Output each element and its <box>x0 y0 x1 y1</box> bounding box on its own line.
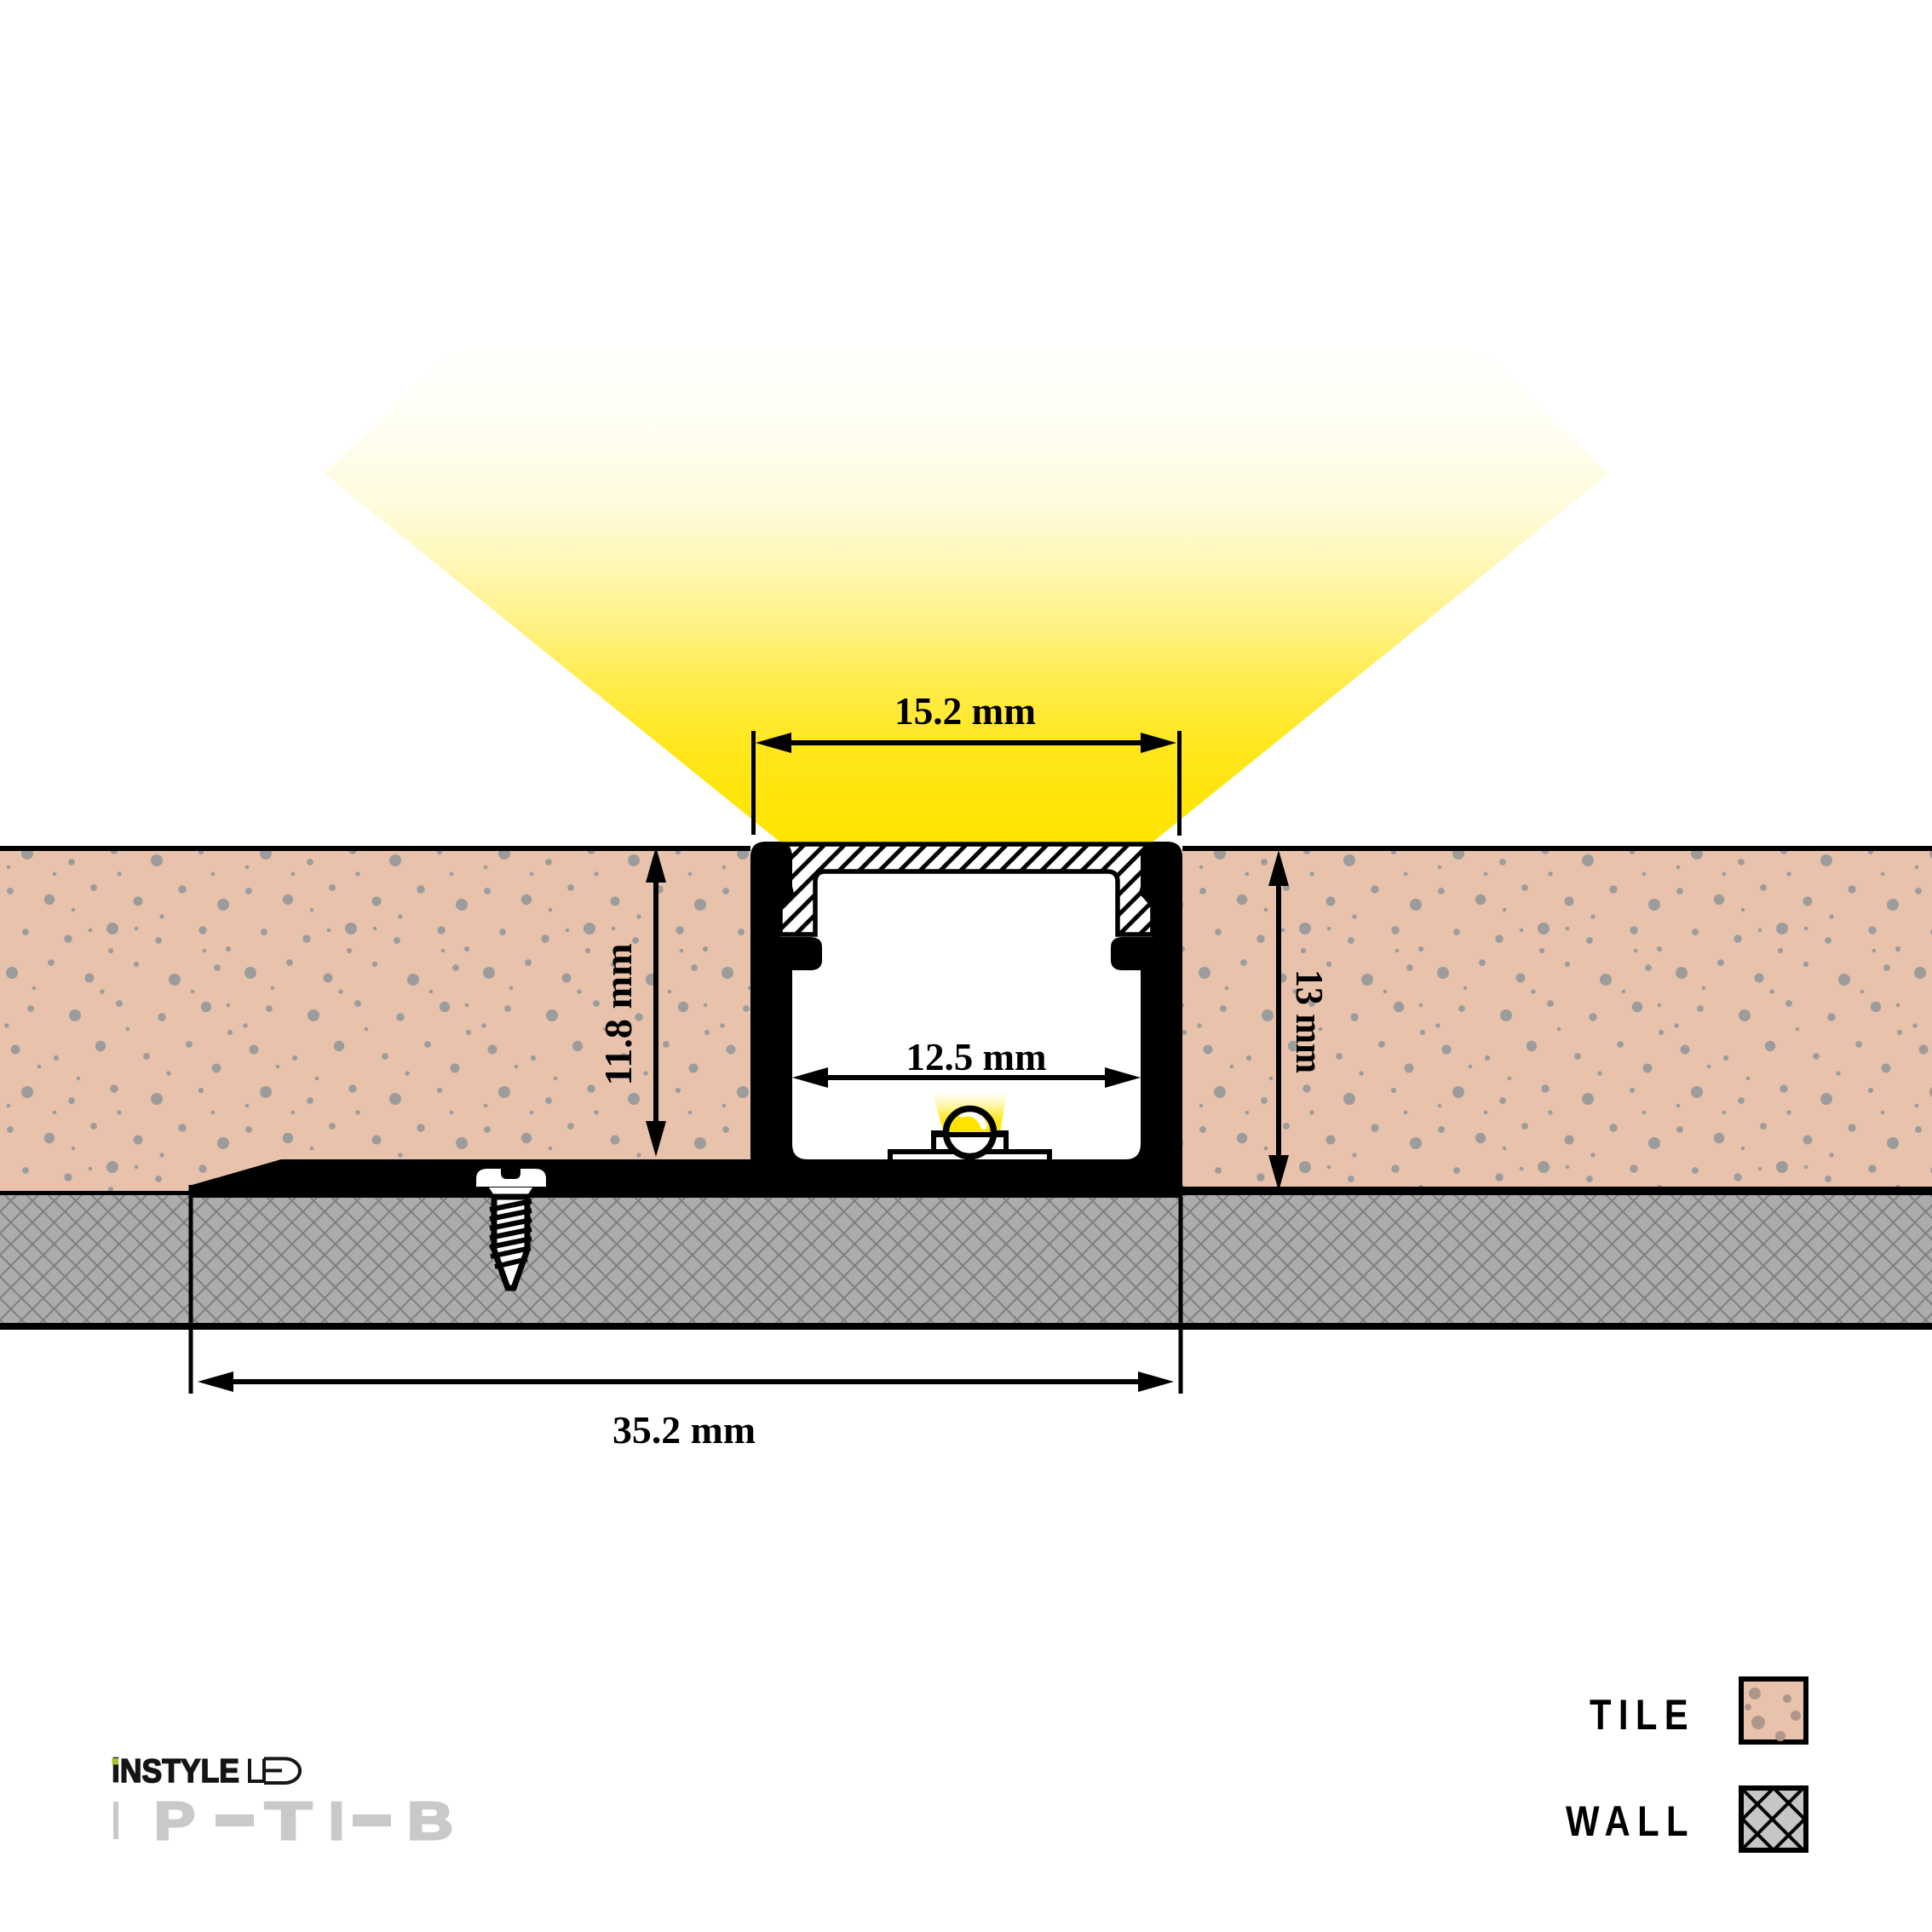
svg-text:13 mm: 13 mm <box>1288 969 1331 1073</box>
svg-text:I: I <box>329 1792 344 1851</box>
svg-text:T: T <box>265 1792 312 1851</box>
svg-text:15.2 mm: 15.2 mm <box>894 689 1036 733</box>
svg-text:iNSTYLE: iNSTYLE <box>112 1753 239 1790</box>
svg-text:P: P <box>154 1792 195 1851</box>
svg-text:35.2 mm: 35.2 mm <box>612 1408 756 1452</box>
svg-text:TILE: TILE <box>1590 1691 1695 1739</box>
svg-text:12.5 mm: 12.5 mm <box>906 1035 1047 1078</box>
svg-text:11.8 mm: 11.8 mm <box>596 944 640 1086</box>
svg-text:B: B <box>407 1792 453 1851</box>
svg-text:WALL: WALL <box>1566 1797 1695 1845</box>
